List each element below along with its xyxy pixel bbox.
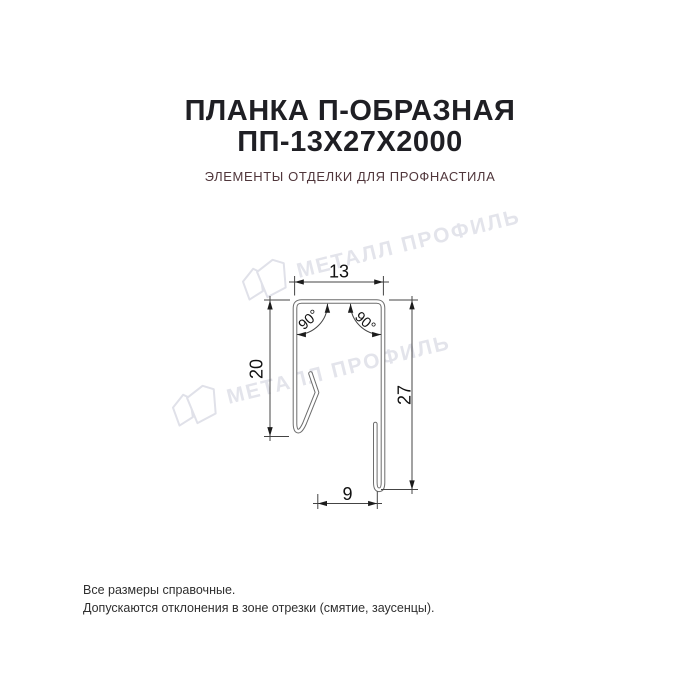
dim-top-width-label: 13 (329, 262, 349, 282)
footer-note-1: Все размеры справочные. (83, 582, 435, 600)
arc-arrow-icon (372, 332, 381, 337)
footer-note-2: Допускаются отклонения в зоне отрезки (с… (83, 600, 435, 618)
dimension-annotations: 13 20 27 9 90° 90° (247, 262, 419, 510)
arrow-right-icon (368, 501, 377, 506)
dim-right-height-label: 27 (395, 385, 415, 405)
angle-top-left-label: 90° (296, 307, 323, 334)
arrow-up-icon (267, 300, 272, 309)
angle-top-right-label: 90° (351, 309, 378, 336)
arrow-left-icon (318, 501, 327, 506)
arrow-down-icon (267, 427, 272, 436)
arrow-down-icon (409, 480, 414, 489)
arc-arrow-icon (325, 304, 330, 313)
dim-left-height-label: 20 (247, 359, 267, 379)
dim-bottom-width-label: 9 (342, 484, 352, 504)
arrow-right-icon (374, 279, 383, 284)
footer-notes: Все размеры справочные. Допускаются откл… (83, 582, 435, 617)
arrow-left-icon (295, 279, 304, 284)
arc-arrow-icon (348, 304, 353, 313)
arrow-up-icon (409, 300, 414, 309)
